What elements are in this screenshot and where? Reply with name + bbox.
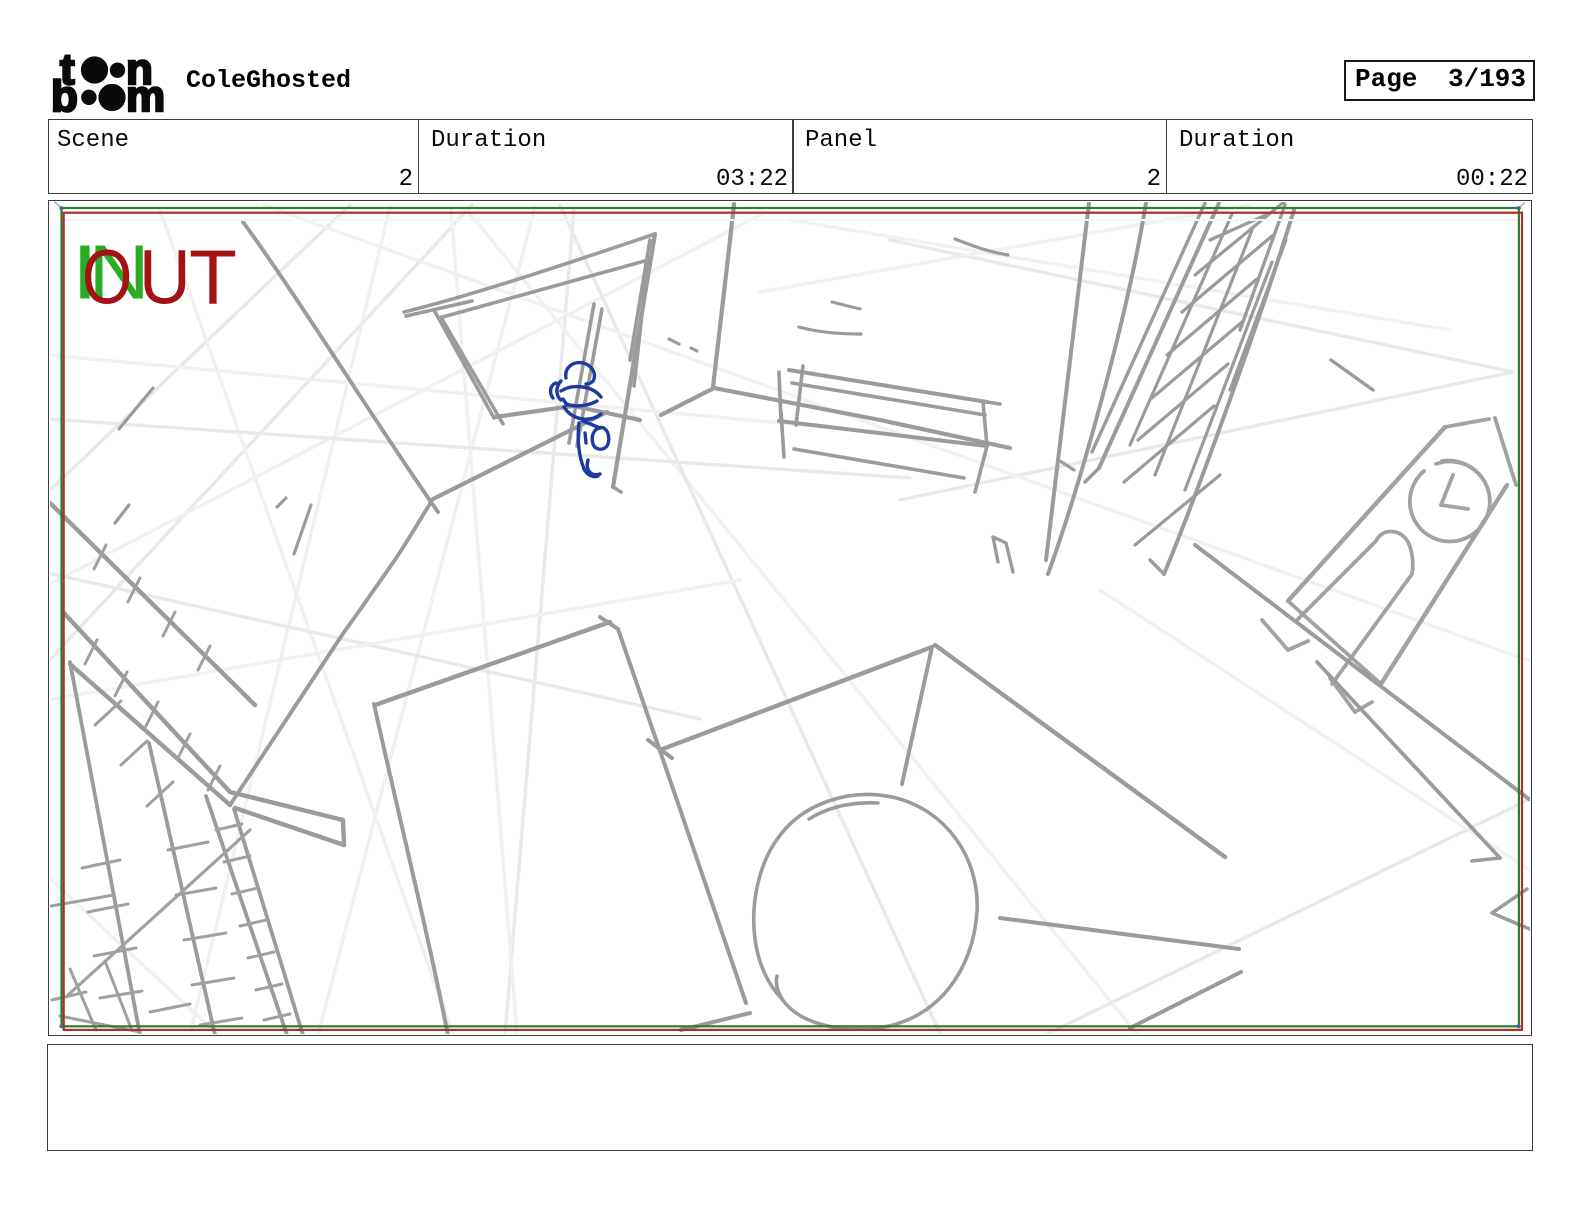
svg-text:m: m xyxy=(126,72,165,121)
svg-text:b: b xyxy=(51,72,78,121)
svg-text:O: O xyxy=(82,235,132,321)
svg-text:U: U xyxy=(139,234,191,320)
svg-text:T: T xyxy=(189,235,237,320)
